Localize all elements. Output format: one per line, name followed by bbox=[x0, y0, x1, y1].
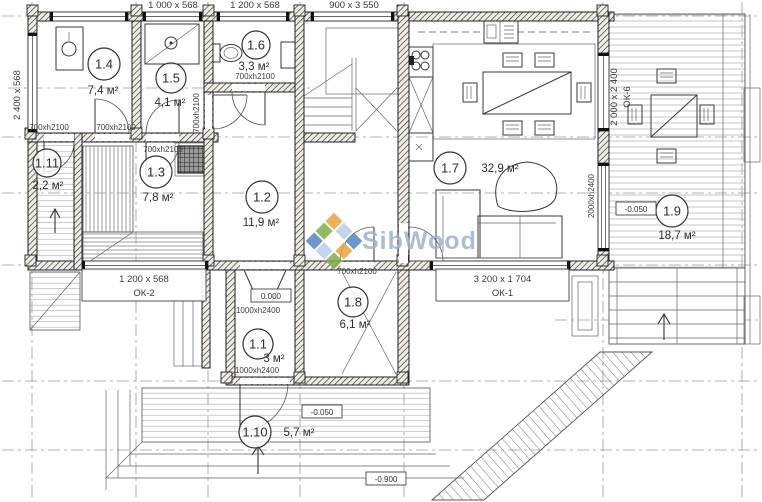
elevation-value: -0.900 bbox=[375, 475, 398, 484]
room-number-1-9: 1.9 bbox=[663, 204, 681, 219]
room-area-1-2: 11,9 м² bbox=[243, 217, 280, 229]
elevation-value: 0.000 bbox=[261, 292, 282, 301]
room-area-1-5: 4,1 м² bbox=[155, 97, 186, 109]
room-area-1-10: 5,7 м² bbox=[284, 427, 315, 439]
elevation-value: -0.050 bbox=[311, 408, 334, 417]
room-number-1-8: 1.8 bbox=[344, 295, 362, 310]
room-number-1-3: 1.3 bbox=[147, 165, 165, 180]
dim-label: 2000xh2400 bbox=[587, 173, 596, 218]
dim-label: 2 400 x 568 bbox=[12, 70, 23, 120]
dim-label: ОК-6 bbox=[622, 86, 633, 107]
dim-label: 1 000 x 568 bbox=[148, 0, 198, 11]
room-area-1-9: 18,7 м² bbox=[658, 230, 695, 242]
kitchen-unit bbox=[407, 21, 595, 161]
room-area-1-11: 2,2 м² bbox=[33, 180, 64, 192]
dim-label: 1000xh2400 bbox=[235, 366, 280, 375]
room-area-1-7: 32,9 м² bbox=[481, 163, 518, 175]
room-number-1-4: 1.4 bbox=[95, 57, 113, 72]
dim-label: 700xh2100 bbox=[235, 72, 275, 81]
dim-label: 700xh2100 bbox=[29, 123, 69, 132]
room-number-1-5: 1.5 bbox=[162, 71, 180, 86]
room-area-1-3: 7,8 м² bbox=[143, 192, 174, 204]
room-number-1-1: 1.1 bbox=[249, 337, 267, 352]
room-number-1-7: 1.7 bbox=[441, 161, 459, 176]
floor-plan: 1.13 м²1.211,9 м²1.37,8 м²1.47,4 м²1.54,… bbox=[0, 0, 762, 502]
shower bbox=[145, 24, 199, 64]
room-number-1-2: 1.2 bbox=[253, 190, 271, 205]
floor-plan-canvas: 1.13 м²1.211,9 м²1.37,8 м²1.47,4 м²1.54,… bbox=[0, 0, 762, 502]
window-tag-dims: 3 200 x 1 704 bbox=[474, 274, 532, 285]
room-area-1-1: 3 м² bbox=[263, 353, 284, 365]
dim-label: 700xh2100 bbox=[192, 93, 201, 133]
staircase bbox=[304, 28, 398, 131]
room-number-1-11: 1.11 bbox=[35, 156, 59, 171]
toilet bbox=[213, 44, 242, 62]
elevation-value: -0.050 bbox=[625, 205, 648, 214]
room-number-1-6: 1.6 bbox=[247, 38, 265, 53]
room-number-1-10: 1.10 bbox=[242, 425, 267, 440]
room-area-1-8: 6,1 м² bbox=[340, 319, 371, 331]
dim-label: 1 200 x 568 bbox=[230, 0, 280, 11]
stair-band bbox=[432, 352, 652, 500]
dim-label: 700xh2100 bbox=[96, 123, 136, 132]
window-tag-name: ОК-1 bbox=[492, 288, 513, 299]
room-area-1-4: 7,4 м² bbox=[88, 85, 119, 97]
dim-label: 700xh2100 bbox=[143, 145, 183, 154]
sofa bbox=[436, 190, 562, 258]
washbasin bbox=[56, 27, 83, 70]
dim-label: 700xh2100 bbox=[337, 267, 377, 276]
window-tag-dims: 1 200 x 568 bbox=[119, 274, 169, 285]
dim-label: 1000xh2400 bbox=[236, 306, 281, 315]
dim-label: 2 000 x 2 400 bbox=[609, 68, 620, 126]
window-tag-name: ОК-2 bbox=[133, 288, 154, 299]
dining-table-set bbox=[463, 53, 591, 135]
dim-label: 900 x 3 550 bbox=[329, 0, 379, 11]
